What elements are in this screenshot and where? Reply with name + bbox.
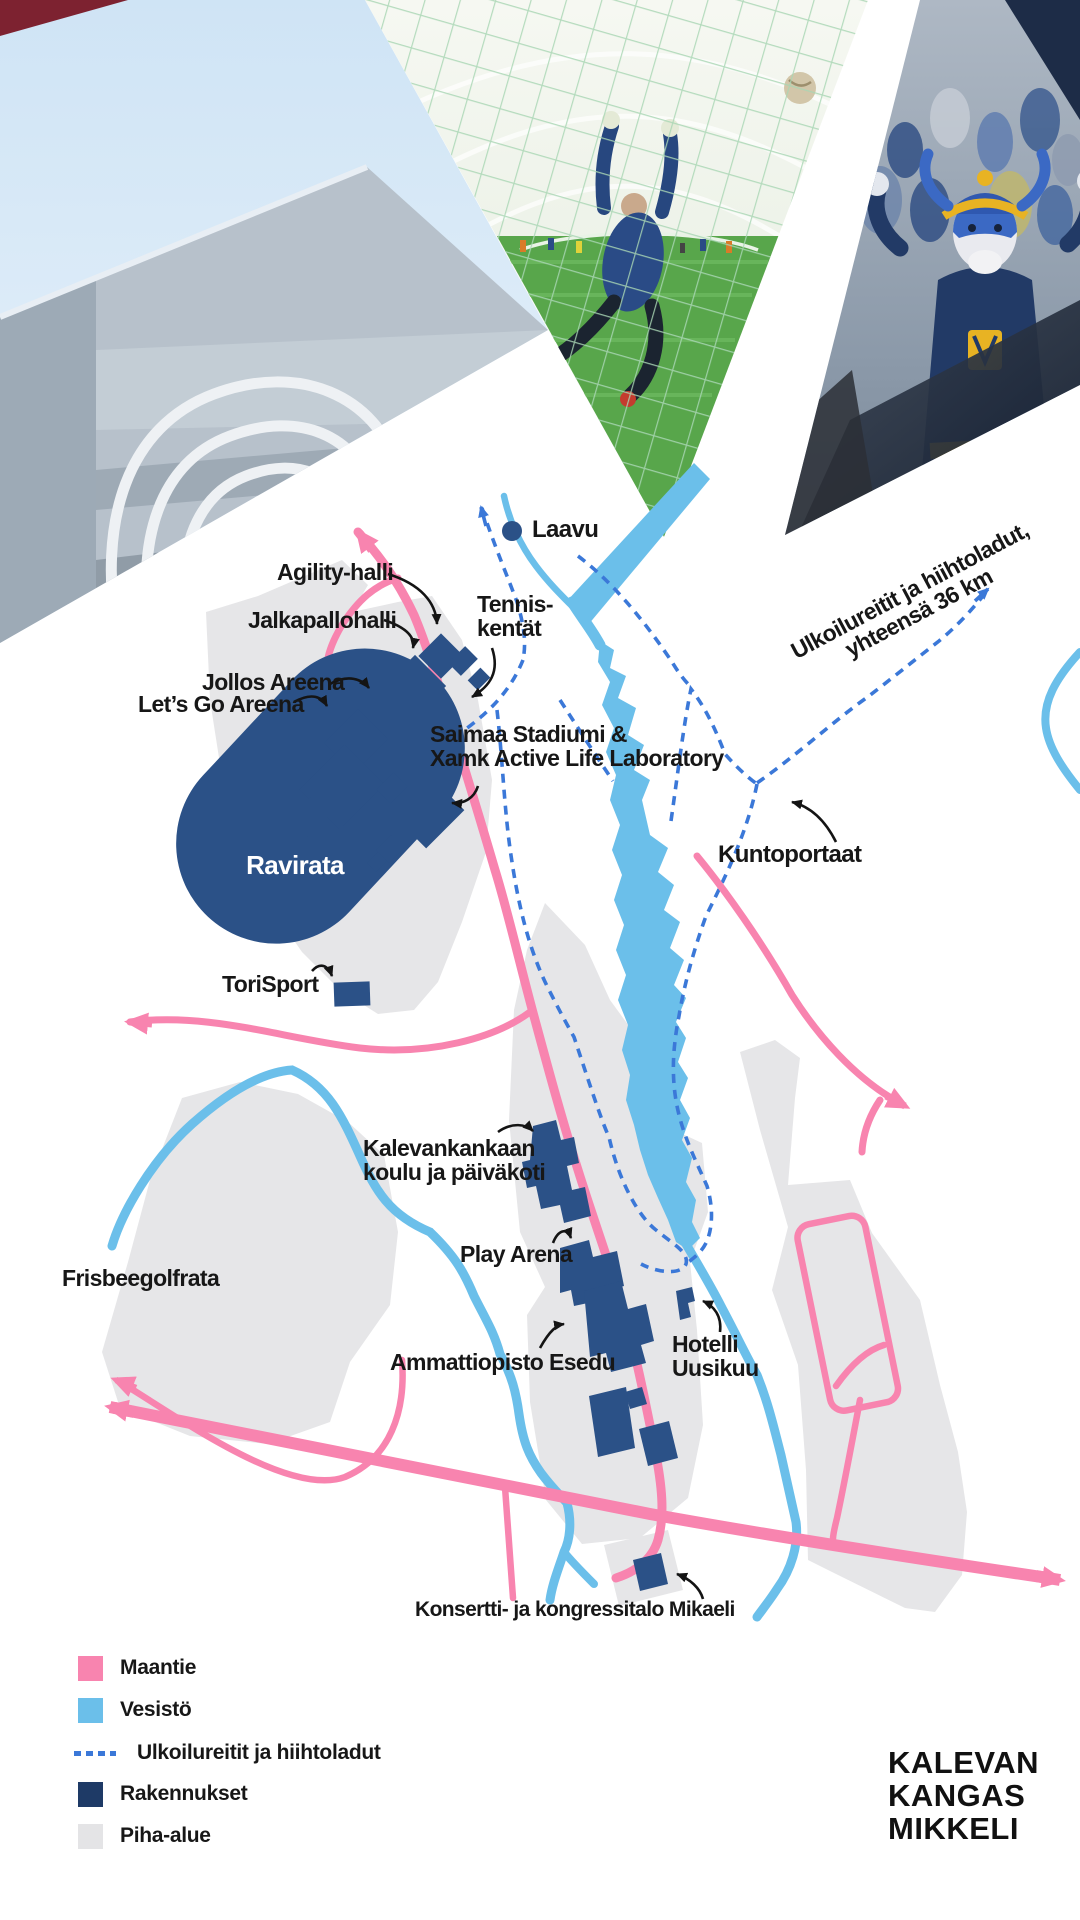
legend-swatch-water	[78, 1698, 103, 1723]
label-tennis-kentat: Tennis-kentät	[477, 592, 553, 640]
legend-swatch-road	[78, 1656, 103, 1681]
label-tennis-line2: kentät	[477, 616, 553, 640]
label-koulu-line1: Kalevankankaan	[363, 1135, 535, 1161]
label-tennis-line1: Tennis-	[477, 591, 553, 617]
legend-row-maantie: Maantie	[78, 1655, 196, 1681]
label-saimaa-line1: Saimaa Stadiumi &	[430, 721, 627, 747]
label-saimaa-stadiumi: Saimaa Stadiumi &Xamk Active Life Labora…	[430, 722, 724, 770]
laavu-dot	[502, 521, 522, 541]
legend-label-maantie: Maantie	[120, 1656, 196, 1680]
legend-label-rakennukset: Rakennukset	[120, 1782, 247, 1806]
label-ravirata: Ravirata	[215, 853, 375, 877]
legend-label-ulkoilureitit: Ulkoilureitit ja hiihtoladut	[137, 1741, 381, 1765]
label-letsgo-areena: Let’s Go Areena	[138, 692, 304, 716]
building-torisport	[334, 981, 371, 1006]
label-jalkapallohalli: Jalkapallohalli	[248, 608, 396, 632]
legend-row-piha-alue: Piha-alue	[78, 1823, 211, 1849]
label-saimaa-line2: Xamk Active Life Laboratory	[430, 746, 724, 770]
legend-row-vesisto: Vesistö	[78, 1697, 191, 1723]
legend-row-ulkoilureitit: Ulkoilureitit ja hiihtoladut	[78, 1740, 381, 1766]
label-hotelli-line1: Hotelli	[672, 1331, 738, 1357]
label-koulu: Kalevankankaankoulu ja päiväkoti	[363, 1136, 545, 1184]
logo-line2: KANGAS	[888, 1779, 1039, 1812]
legend-swatch-yard	[78, 1824, 103, 1849]
label-play-arena: Play Arena	[460, 1242, 572, 1266]
label-laavu: Laavu	[532, 518, 598, 542]
label-koulu-line2: koulu ja päiväkoti	[363, 1160, 545, 1184]
map-canvas	[0, 0, 1080, 1920]
legend-swatch-trail	[74, 1751, 116, 1756]
label-hotelli-line2: Uusikuu	[672, 1356, 759, 1380]
legend-swatch-buildings	[78, 1782, 103, 1807]
label-hotelli-uusikuu: HotelliUusikuu	[672, 1332, 759, 1380]
label-mikaeli: Konsertti- ja kongressitalo Mikaeli	[415, 1598, 735, 1622]
logo-line3: MIKKELI	[888, 1812, 1039, 1845]
legend-label-piha-alue: Piha-alue	[120, 1824, 211, 1848]
kalevankangas-logo: KALEVAN KANGAS MIKKELI	[888, 1746, 1039, 1845]
label-frisbeegolfrata: Frisbeegolfrata	[62, 1266, 219, 1290]
label-kuntoportaat: Kuntoportaat	[718, 843, 861, 867]
infographic-page: Laavu Agility-halli Jalkapallohalli Tenn…	[0, 0, 1080, 1920]
legend-row-rakennukset: Rakennukset	[78, 1781, 247, 1807]
label-esedu: Ammattiopisto Esedu	[390, 1350, 615, 1374]
label-agility-halli: Agility-halli	[277, 560, 393, 584]
label-torisport: ToriSport	[222, 972, 318, 996]
trail-arrow-north	[481, 507, 486, 526]
legend-label-vesisto: Vesistö	[120, 1698, 191, 1722]
logo-line1: KALEVAN	[888, 1746, 1039, 1779]
